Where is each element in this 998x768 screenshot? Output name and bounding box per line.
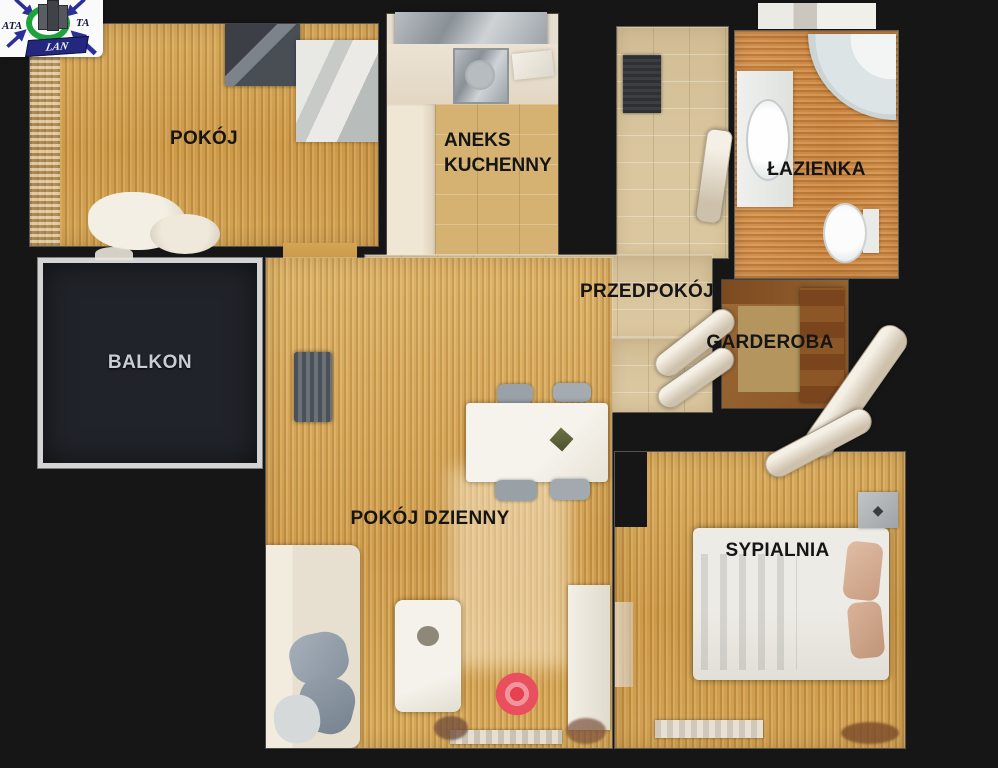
dining-chair — [553, 383, 591, 402]
toilet-bowl — [823, 203, 867, 263]
kitchen-sink — [453, 48, 509, 104]
kitchen-label-line1: ANEKS — [444, 128, 552, 153]
room-label-pokoj-dzienny: POKÓJ DZIENNY — [248, 508, 612, 530]
coffee-table — [395, 600, 461, 712]
towel-rail — [758, 3, 876, 29]
logo-banner-text: LAN — [45, 40, 69, 54]
couch — [266, 545, 360, 748]
logo-text-left: ATA — [2, 20, 22, 32]
sink-vanity — [737, 71, 793, 207]
room-label-przedpokoj: PRZEDPOKÓJ — [567, 281, 727, 303]
scan-artifact — [615, 602, 633, 687]
sink-basin — [465, 60, 495, 90]
kitchen-label-line2: KUCHENNY — [444, 153, 552, 178]
doormat — [623, 55, 661, 113]
bedroom-radiator — [655, 720, 763, 738]
room-label-pokoj: POKÓJ — [30, 128, 378, 150]
dining-chair — [495, 480, 537, 501]
room-label-garderoba: GARDEROBA — [690, 332, 850, 354]
bed-single — [296, 40, 378, 142]
room-balkon: BALKON — [38, 258, 262, 468]
room-sypialnia: SYPIALNIA ◆ — [615, 452, 905, 748]
toilet — [821, 201, 879, 263]
logo-buildings-icon — [36, 0, 68, 32]
logo-banner: LAN — [25, 36, 89, 57]
balcony-door-swing — [95, 247, 133, 260]
room-garderoba: GARDEROBA — [722, 280, 848, 408]
table-plant — [549, 427, 573, 451]
floorplan-canvas: POKÓJ ANEKS KUCHENNY PRZEDPOKÓJ — [0, 0, 998, 768]
room-pokoj-dzienny: POKÓJ DZIENNY — [266, 258, 612, 748]
camera-waypoint-marker[interactable] — [494, 671, 540, 717]
kitchen-cabinets-left — [387, 104, 437, 258]
room-label-balkon: BALKON — [108, 352, 192, 374]
floor-stain — [566, 718, 606, 744]
table-decor — [417, 626, 439, 646]
dining-table — [466, 403, 608, 482]
media-cabinet — [568, 585, 610, 730]
room-label-sypialnia: SYPIALNIA — [650, 540, 905, 562]
open-door-bathroom — [695, 128, 734, 225]
wardrobe — [225, 24, 300, 86]
room-pokoj: POKÓJ — [30, 24, 378, 246]
stove-top — [395, 12, 547, 48]
duvet-folds — [701, 554, 797, 670]
room-lazienka: ŁAZIENKA — [735, 31, 898, 278]
room-label-kitchen: ANEKS KUCHENNY — [444, 128, 552, 178]
radiator — [294, 352, 332, 422]
wall-notch — [615, 452, 647, 527]
dining-chair — [550, 479, 590, 500]
floor-stain — [434, 716, 468, 740]
wall-panel: ◆ — [858, 492, 898, 528]
room-kitchen: ANEKS KUCHENNY — [387, 14, 558, 258]
shower-corner — [808, 34, 896, 120]
agency-logo: ATA TA LAN — [0, 0, 103, 57]
corridor-entrance — [617, 27, 728, 258]
bed-pillow — [847, 601, 886, 660]
floor-stain — [841, 722, 899, 744]
bedding-pile-2 — [150, 214, 220, 254]
dining-chair — [497, 384, 533, 404]
cutting-board — [512, 50, 554, 80]
logo-text-right: TA — [76, 17, 89, 29]
room-label-lazienka: ŁAZIENKA — [735, 159, 898, 181]
panel-diamond-icon: ◆ — [873, 502, 884, 519]
